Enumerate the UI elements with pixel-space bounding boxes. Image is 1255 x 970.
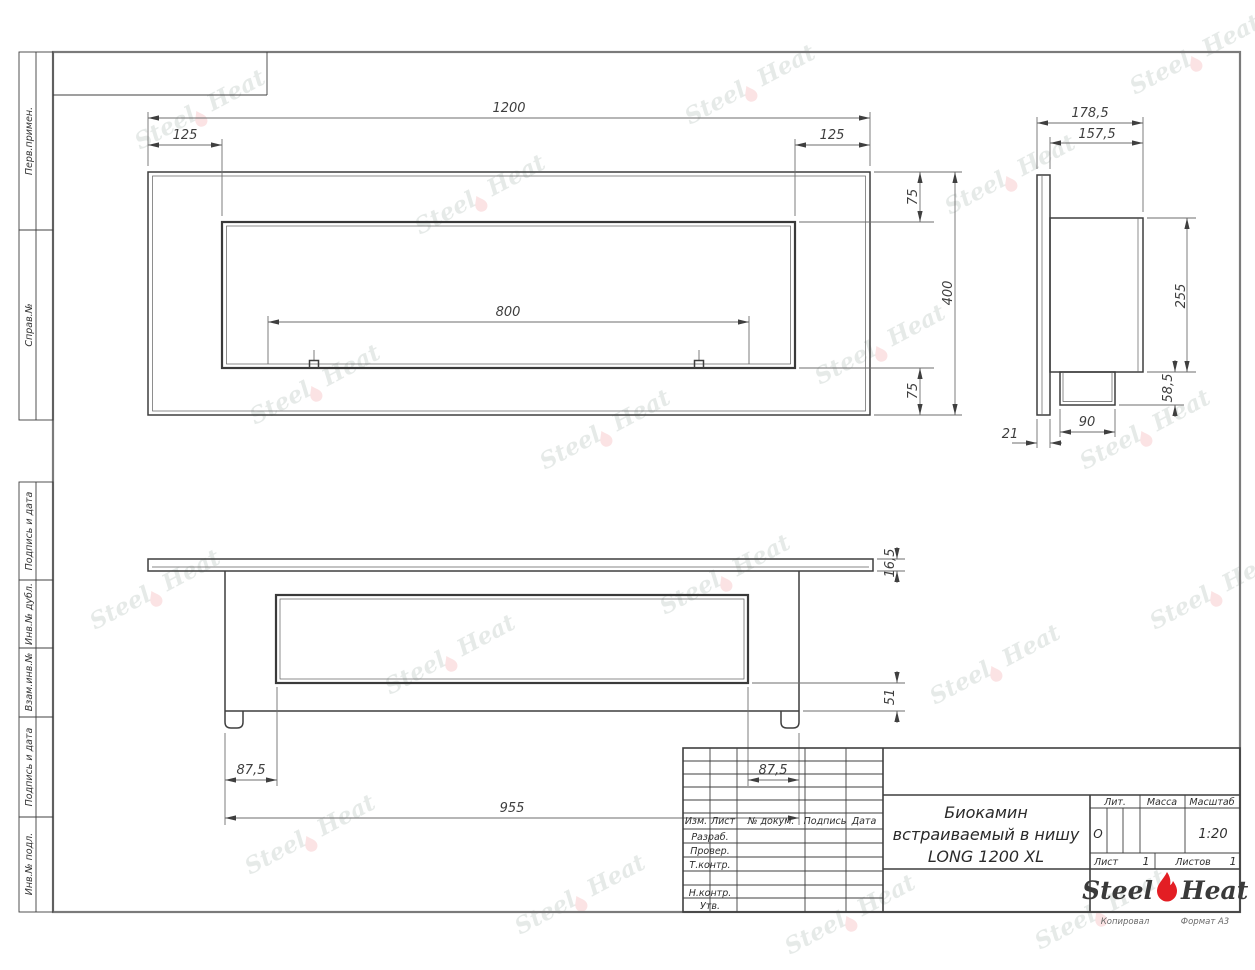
tb-row-utv: Утв. — [700, 901, 720, 912]
tb-row-nkontr: Н.контр. — [689, 888, 732, 899]
doc-title-line-3: LONG 1200 XL — [928, 847, 1044, 866]
tb-row-razrab: Разраб. — [691, 832, 728, 843]
tb-col-data: Дата — [851, 816, 877, 827]
tb-mass-label: Масса — [1147, 797, 1177, 808]
dim-side-box-width: 90 — [1079, 415, 1096, 430]
footer-copied-label: Копировал — [1101, 917, 1150, 927]
dim-side-flange-thickness: 21 — [1002, 427, 1019, 442]
margin-label-inv-podl: Инв.№ подл. — [24, 833, 35, 896]
footer-format-label: Формат А3 — [1181, 917, 1229, 927]
dim-front-total-width: 1200 — [492, 101, 525, 116]
margin-label-inv-dubl: Инв.№ дубл. — [24, 583, 35, 645]
steel-heat-logo: Steel Heat — [1082, 872, 1249, 905]
margin-label-perv-primen: Перв.примен. — [24, 107, 35, 175]
front-view: 1200 125 125 800 75 400 75 — [148, 101, 962, 415]
doc-title-line-1: Биокамин — [944, 803, 1028, 822]
burner-tab-right — [695, 350, 704, 368]
tb-sheets-label: Листов — [1174, 857, 1211, 868]
dim-bottom-lip-height: 51 — [883, 689, 898, 706]
dim-front-margin-top: 75 — [906, 189, 921, 206]
dim-front-inset-left: 125 — [173, 128, 198, 143]
tb-col-docnum: № докум. — [747, 816, 795, 827]
tb-col-list: Лист — [710, 816, 736, 827]
drawing-frame — [53, 52, 1240, 912]
logo-text-steel: Steel — [1082, 876, 1153, 905]
dim-front-margin-bottom: 75 — [906, 383, 921, 400]
dim-side-depth-total: 178,5 — [1071, 106, 1108, 121]
burner-tab-left — [310, 350, 319, 368]
margin-label-vzam-inv: Взам.инв.№ — [24, 653, 35, 712]
doc-title-line-2: встраиваемый в нишу — [893, 825, 1080, 844]
dim-side-height-body: 255 — [1174, 284, 1189, 309]
dim-side-box-height: 58,5 — [1161, 374, 1176, 403]
dim-front-burner-width: 800 — [496, 305, 521, 320]
tb-col-izm: Изм. — [685, 816, 707, 827]
tb-scale-label: Масштаб — [1189, 797, 1234, 808]
foot-right — [781, 711, 799, 728]
dim-front-total-height: 400 — [941, 281, 956, 306]
tb-row-prover: Провер. — [690, 846, 729, 857]
logo-text-heat: Heat — [1180, 876, 1249, 905]
tb-lit-label: Лит. — [1103, 797, 1126, 808]
margin-label-podpis-data-1: Подпись и дата — [24, 491, 35, 570]
bottom-view: 16,5 51 87,5 87,5 955 — [148, 547, 905, 825]
tb-lit-value: О — [1093, 827, 1102, 841]
tb-col-podpis: Подпись — [804, 816, 847, 827]
dim-side-depth-body: 157,5 — [1078, 127, 1115, 142]
margin-label-podpis-data-2: Подпись и дата — [24, 727, 35, 806]
dim-front-inset-right: 125 — [820, 128, 845, 143]
tb-sheet-value: 1 — [1143, 855, 1150, 868]
tb-row-tkontr: Т.контр. — [689, 860, 730, 871]
watermark-layer — [85, 9, 1255, 963]
dim-bottom-plate-thickness: 16,5 — [883, 549, 898, 578]
tb-scale-value: 1:20 — [1198, 827, 1227, 842]
drawing-page: Steel Heat — [0, 0, 1255, 970]
tb-sheets-value: 1 — [1230, 855, 1237, 868]
frame-footer: Копировал Формат А3 — [1101, 917, 1230, 927]
dim-bottom-inset-right: 87,5 — [759, 763, 788, 778]
foot-left — [225, 711, 243, 728]
dim-bottom-inset-left: 87,5 — [237, 763, 266, 778]
dim-bottom-body-width: 955 — [500, 801, 525, 816]
tb-sheet-label: Лист — [1093, 857, 1119, 868]
margin-label-sprav-no: Справ.№ — [24, 303, 35, 346]
margin-column: Перв.примен. Справ.№ Подпись и дата Инв.… — [19, 52, 53, 912]
